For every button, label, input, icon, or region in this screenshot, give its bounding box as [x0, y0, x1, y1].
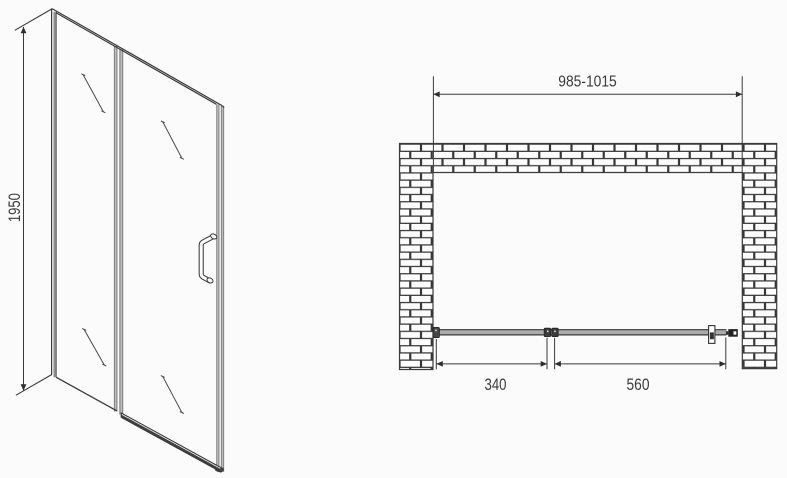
svg-text:985-1015: 985-1015: [558, 73, 617, 90]
svg-text:340: 340: [485, 376, 507, 394]
svg-text:560: 560: [627, 376, 650, 394]
svg-text:1950: 1950: [6, 193, 24, 222]
